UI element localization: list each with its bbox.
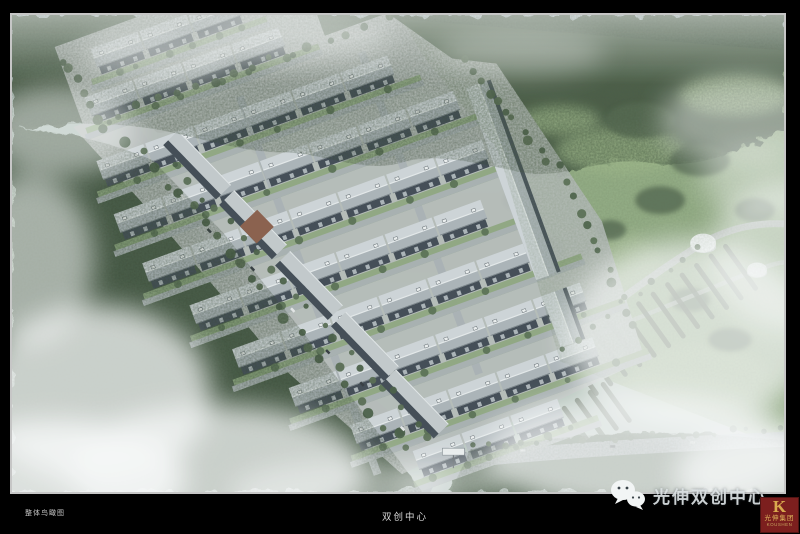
watermark: 光伸双创中心	[610, 479, 767, 511]
framed-aerial-image	[10, 13, 786, 494]
logo-letter: K	[760, 498, 799, 515]
caption-bottom-left: 整体鸟瞰图	[25, 508, 65, 518]
caption-bottom-center: 双创中心	[382, 509, 428, 523]
logo-latin-name: KOUSHEN	[760, 522, 799, 528]
company-logo: K 光伸集团 KOUSHEN	[760, 497, 799, 533]
aerial-rendering	[12, 15, 784, 492]
haze-tint	[12, 15, 784, 492]
wechat-icon	[610, 479, 646, 511]
logo-company-name: 光伸集团	[760, 515, 799, 522]
watermark-text: 光伸双创中心	[653, 483, 767, 508]
